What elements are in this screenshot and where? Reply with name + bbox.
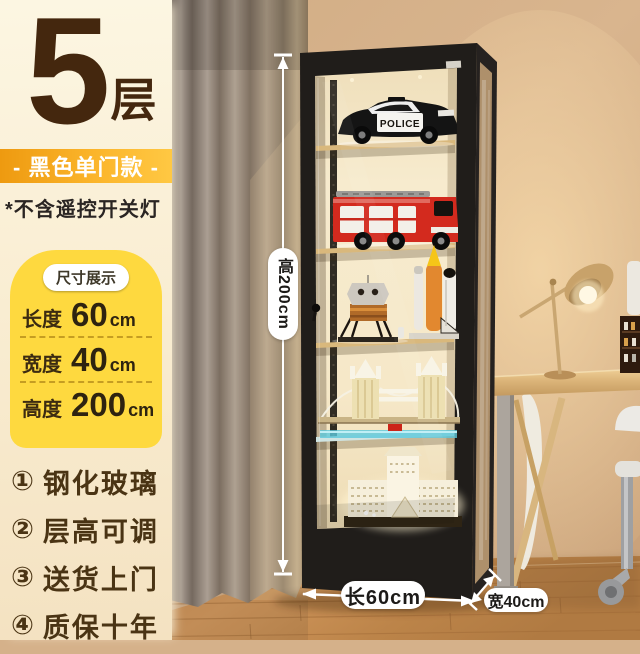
feature-item-home-delivery: ③ 送货上门	[11, 558, 159, 597]
tier-headline: 5 层	[26, 2, 157, 142]
size-row-width: 宽度 40 cm	[10, 338, 162, 378]
size-unit: cm	[110, 310, 136, 331]
size-box: 尺寸展示 长度 60 cm 宽度 40 cm 高度 200 cm	[10, 250, 162, 448]
feature-number: ③	[11, 562, 34, 593]
size-label: 宽度	[22, 348, 62, 377]
feature-text: 质保十年	[43, 606, 159, 645]
size-unit: cm	[128, 400, 154, 421]
feature-item-adjustable-shelf: ② 层高可调	[11, 510, 159, 549]
brand-tag	[446, 61, 461, 69]
tier-number: 5	[26, 2, 107, 142]
feature-text: 送货上门	[43, 558, 159, 597]
display-cabinet: POLICE	[300, 43, 497, 600]
feature-list: ① 钢化玻璃 ② 层高可调 ③ 送货上门 ④ 质保十年	[11, 462, 159, 654]
size-box-title: 尺寸展示	[43, 264, 129, 291]
door-lock-knob	[312, 304, 320, 312]
police-text: POLICE	[380, 119, 420, 130]
feature-text: 层高可调	[43, 510, 159, 549]
length-dimension-pill: 长60cm	[341, 581, 425, 609]
lego-fire-truck	[333, 191, 458, 250]
variant-badge: - 黑色单门款 -	[0, 149, 172, 183]
size-row-height: 高度 200 cm	[10, 383, 162, 423]
feature-number: ④	[11, 610, 34, 641]
feature-text: 钢化玻璃	[43, 462, 159, 501]
width-dimension-pill: 宽40cm	[484, 588, 548, 612]
desk-organizer	[620, 316, 640, 373]
size-value: 60	[71, 298, 108, 331]
disclaimer-note: *不含遥控开关灯	[5, 193, 161, 222]
height-dimension-pill: 高200cm	[268, 248, 298, 340]
feature-item-warranty: ④ 质保十年	[11, 606, 159, 645]
white-bottle	[627, 261, 640, 315]
feature-number: ②	[11, 514, 34, 545]
size-label: 长度	[22, 303, 62, 332]
size-label: 高度	[22, 393, 62, 422]
feature-number: ①	[11, 466, 34, 497]
feature-item-tempered-glass: ① 钢化玻璃	[11, 462, 159, 501]
tier-unit: 层	[111, 64, 157, 130]
info-panel: 5 层 - 黑色单门款 - *不含遥控开关灯 尺寸展示 长度 60 cm 宽度 …	[0, 0, 172, 640]
size-row-length: 长度 60 cm	[10, 293, 162, 333]
size-unit: cm	[110, 355, 136, 376]
size-value: 200	[71, 388, 126, 421]
size-value: 40	[71, 343, 108, 376]
